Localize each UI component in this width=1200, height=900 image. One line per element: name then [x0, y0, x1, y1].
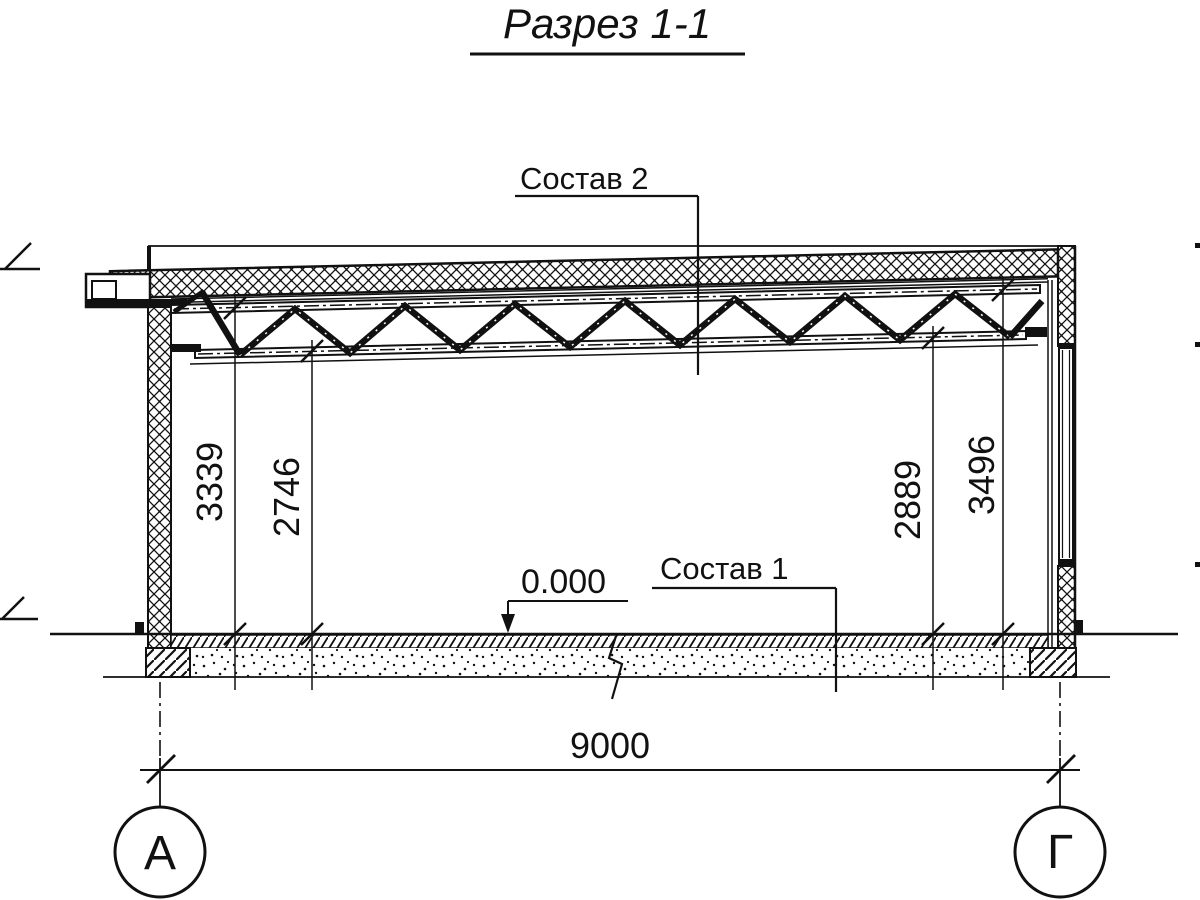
- dim-label-3339: 3339: [189, 442, 230, 522]
- grid-axis-left: А: [115, 682, 205, 897]
- floor-screed: [171, 635, 1048, 648]
- right-wall-window: [1059, 348, 1073, 560]
- foundation-right: [1030, 620, 1083, 677]
- axis-label-left: А: [144, 827, 176, 880]
- floor-slab: [50, 634, 1178, 699]
- drawing-title: Разрез 1-1: [503, 0, 711, 47]
- right-wall: [1048, 246, 1075, 648]
- dim-label-span: 9000: [570, 725, 650, 766]
- axis-label-right: Г: [1047, 826, 1073, 879]
- fascia-board: [92, 281, 116, 299]
- steel-truss: [171, 285, 1047, 364]
- level-tick-right-edge: [1195, 243, 1200, 567]
- truss-bearing-left: [171, 344, 201, 352]
- dim-label-3496: 3496: [961, 435, 1002, 515]
- level-tick-ground-left: [0, 597, 38, 619]
- section-drawing: 3339 2746 2889 3496 Состав 2 Состав 1 0.…: [0, 0, 1200, 900]
- level-arrow-icon: [501, 614, 515, 633]
- section-drawing-sheet: 3339 2746 2889 3496 Состав 2 Состав 1 0.…: [0, 0, 1200, 900]
- title-block: Разрез 1-1: [470, 0, 745, 54]
- floor-level-label: 0.000: [521, 563, 606, 601]
- callout-roof-composition-label: Состав 2: [520, 161, 649, 196]
- truss-bearing-right: [1025, 327, 1047, 337]
- callout-floor-composition-label: Состав 1: [660, 551, 789, 586]
- dim-label-2746: 2746: [266, 457, 307, 537]
- grid-axis-right: Г: [1015, 682, 1105, 897]
- floor-level-mark: 0.000: [501, 563, 628, 633]
- span-dimension: 9000: [140, 725, 1080, 783]
- level-tick-roof-left: [0, 243, 40, 269]
- dim-label-2889: 2889: [887, 460, 928, 540]
